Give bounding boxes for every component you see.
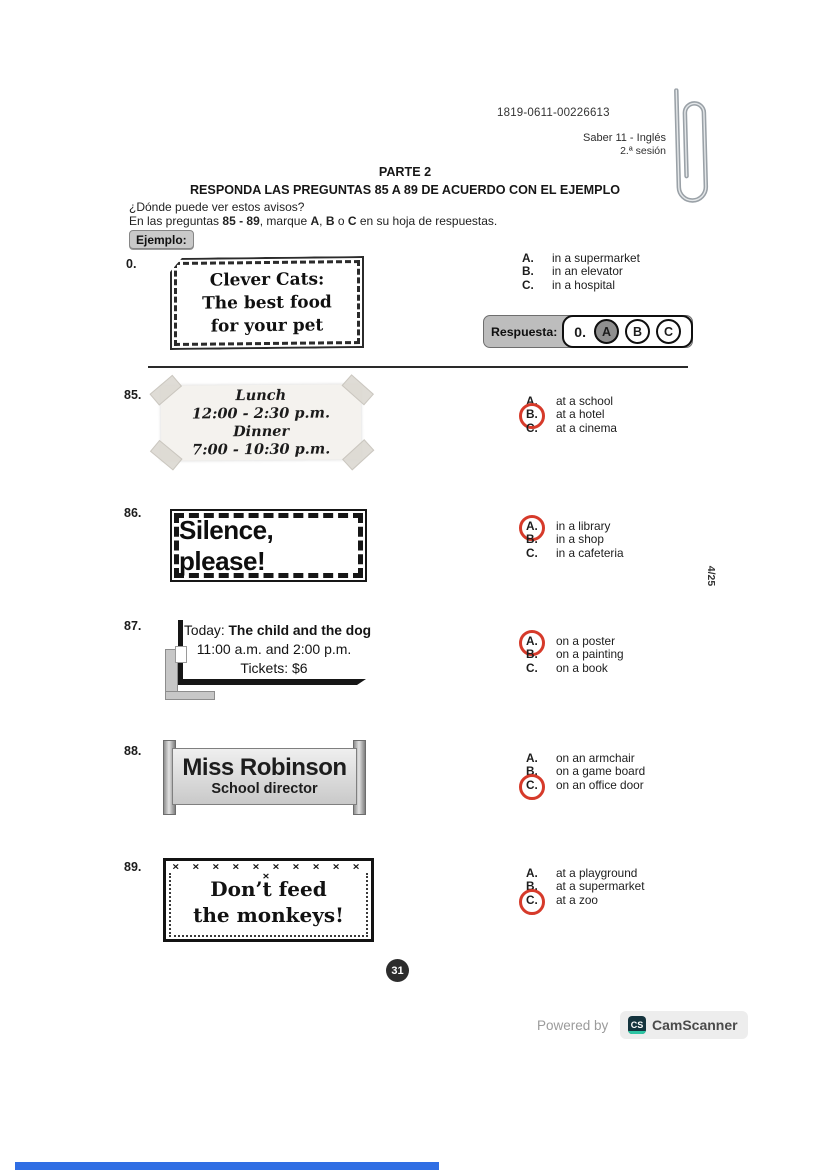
example-label: Ejemplo:: [129, 230, 194, 249]
sign-clever-cats: Clever Cats: The best food for your pet: [170, 256, 364, 350]
form-code: 1819-0611-00226613: [497, 107, 610, 119]
option-text: in a supermarket: [552, 251, 640, 265]
question-number-0: 0.: [126, 257, 136, 271]
option-letter: A.: [526, 751, 556, 765]
option-row: B.on a game board: [526, 764, 645, 777]
answer-bubble-a: A: [594, 319, 619, 344]
exam-session: 2.ª sesión: [498, 145, 666, 157]
option-row: C.at a zoo: [526, 893, 645, 906]
options-question-85: A.at a school B.at a hotel C.at a cinema: [526, 394, 617, 434]
option-letter: C.: [526, 546, 556, 560]
option-text: in a library: [556, 519, 610, 533]
option-row: C.on a book: [526, 661, 624, 674]
directions-bold: A: [310, 214, 319, 228]
bottom-progress-bar: [15, 1162, 439, 1170]
question-number-86: 86.: [124, 506, 141, 520]
answer-bubble-c: C: [656, 319, 681, 344]
option-text: on a poster: [556, 634, 615, 648]
option-row: A.on an armchair: [526, 751, 645, 764]
camscanner-brand: CamScanner: [652, 1017, 738, 1033]
sign-line: 11:00 a.m. and 2:00 p.m.: [184, 640, 364, 659]
directions-bold: 85 - 89: [222, 214, 259, 228]
option-row: A.in a library: [526, 519, 624, 532]
option-letter: A.: [526, 866, 556, 880]
option-text: on a book: [556, 661, 608, 675]
option-row: B.on a painting: [526, 647, 624, 660]
directions-text: , marque: [260, 214, 311, 228]
option-text: at a school: [556, 394, 613, 408]
options-question-86: A.in a library B.in a shop C.in a cafete…: [526, 519, 624, 559]
powered-by-text: Powered by: [537, 1018, 608, 1033]
option-text: in a hospital: [552, 278, 615, 292]
option-row: A.on a poster: [526, 634, 624, 647]
sign-inner-border: Clever Cats: The best food for your pet: [174, 260, 360, 346]
sign-line: for your pet: [177, 314, 357, 339]
directions-text: o: [334, 214, 347, 228]
option-row: B.in an elevator: [522, 264, 640, 277]
camscanner-logo-icon: CS: [628, 1016, 646, 1034]
directions-line: En las preguntas 85 - 89, marque A, B o …: [129, 214, 497, 228]
option-text: on a game board: [556, 764, 645, 778]
option-row: C.at a cinema: [526, 421, 617, 434]
options-question-0: A.in a supermarket B.in an elevator C.in…: [522, 251, 640, 291]
option-text: on a painting: [556, 647, 624, 661]
answer-key-box: Respuesta: 0. A B C: [483, 315, 693, 348]
sign-inner-border: Silence, please!: [174, 513, 363, 578]
answer-key-label: Respuesta:: [484, 316, 563, 347]
question-number-85: 85.: [124, 388, 141, 402]
directions-bold: C: [348, 214, 357, 228]
option-row: B.in a shop: [526, 532, 624, 545]
prompt-question: ¿Dónde puede ver estos avisos?: [129, 200, 304, 214]
option-letter-circled: B.: [526, 407, 556, 421]
option-row: A.in a supermarket: [522, 251, 640, 264]
option-text: in a shop: [556, 532, 604, 546]
option-text: at a supermarket: [556, 879, 645, 893]
sign-title: The child and the dog: [228, 623, 371, 638]
sign-line: Dinner: [161, 422, 361, 441]
stand-base: [165, 691, 215, 700]
option-letter: C.: [526, 421, 556, 435]
sign-nameplate: Miss Robinson School director: [163, 740, 366, 813]
directions-text: en su hoja de respuestas.: [357, 214, 498, 228]
section-divider: [148, 366, 688, 368]
sign-line: Miss Robinson: [182, 755, 346, 781]
option-letter-circled: C.: [526, 778, 556, 792]
option-text: at a cinema: [556, 421, 617, 435]
option-text: on an armchair: [556, 751, 635, 765]
option-letter-circled: A.: [526, 519, 556, 533]
sign-line: 7:00 - 10:30 p.m.: [161, 440, 361, 459]
sign-text: Today: The child and the dog 11:00 a.m. …: [184, 622, 364, 677]
sign-line: Clever Cats:: [177, 268, 357, 293]
option-text: at a playground: [556, 866, 637, 880]
option-text: at a zoo: [556, 893, 598, 907]
question-number-87: 87.: [124, 619, 141, 633]
option-row: B.at a hotel: [526, 407, 617, 420]
option-letter: B.: [526, 532, 556, 546]
option-row: C.in a cafeteria: [526, 546, 624, 559]
option-letter: B.: [526, 647, 556, 661]
option-letter-circled: A.: [526, 634, 556, 648]
question-number-88: 88.: [124, 744, 141, 758]
option-letter-circled: C.: [526, 893, 556, 907]
sign-line: 12:00 - 2:30 p.m.: [161, 404, 361, 423]
sign-monkeys: ✕ ✕ ✕ ✕ ✕ ✕ ✕ ✕ ✕ ✕ ✕ Don’t feed the mon…: [163, 858, 374, 942]
sign-line: the monkeys!: [166, 902, 371, 928]
camscanner-badge: CS CamScanner: [620, 1011, 748, 1039]
question-number-89: 89.: [124, 860, 141, 874]
options-question-89: A.at a playground B.at a supermarket C.a…: [526, 866, 645, 906]
sign-silence: Silence, please!: [170, 509, 367, 582]
option-text: on an office door: [556, 778, 644, 792]
sign-restaurant-hours: Lunch 12:00 - 2:30 p.m. Dinner 7:00 - 10…: [161, 384, 362, 460]
sign-line: Silence, please!: [179, 515, 358, 577]
sign-line: Don’t feed: [166, 876, 371, 902]
directions-text: ,: [319, 214, 326, 228]
paperclip-icon: [662, 87, 719, 222]
sign-line: School director: [211, 781, 317, 798]
section-instruction: RESPONDA LAS PREGUNTAS 85 A 89 DE ACUERD…: [110, 183, 700, 197]
option-text: at a hotel: [556, 407, 605, 421]
answer-bubbles-box: 0. A B C: [562, 315, 693, 348]
part-title: PARTE 2: [110, 165, 700, 179]
frame-bar: [178, 679, 366, 685]
option-row: C.in a hospital: [522, 278, 640, 291]
sign-line: Tickets: $6: [184, 659, 364, 678]
sign-line: The best food: [177, 291, 357, 316]
answer-bubble-b: B: [625, 319, 650, 344]
option-text: in an elevator: [552, 264, 623, 278]
options-question-88: A.on an armchair B.on a game board C.on …: [526, 751, 645, 791]
option-letter: C.: [526, 661, 556, 675]
option-row: A.at a playground: [526, 866, 645, 879]
option-row: C.on an office door: [526, 778, 645, 791]
plate-face: Miss Robinson School director: [172, 748, 357, 805]
sign-show-poster: Today: The child and the dog 11:00 a.m. …: [163, 619, 373, 699]
option-letter: C.: [522, 278, 552, 292]
side-page-indicator: 4/25: [705, 566, 717, 586]
page-number-badge: 31: [386, 959, 409, 982]
sign-prefix: Today:: [184, 623, 228, 638]
directions-text: En las preguntas: [129, 214, 222, 228]
sign-text: Don’t feed the monkeys!: [166, 876, 371, 928]
option-text: in a cafeteria: [556, 546, 624, 560]
sign-line: Lunch: [161, 386, 361, 405]
options-question-87: A.on a poster B.on a painting C.on a boo…: [526, 634, 624, 674]
option-letter: A.: [522, 251, 552, 265]
answer-question-number: 0.: [574, 324, 586, 340]
option-letter: B.: [522, 264, 552, 278]
option-row: B.at a supermarket: [526, 879, 645, 892]
exam-name: Saber 11 - Inglés: [498, 132, 666, 144]
